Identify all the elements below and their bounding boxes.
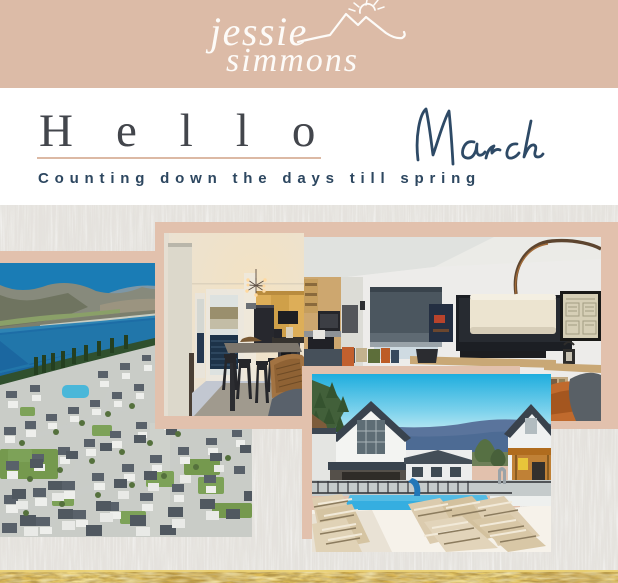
- svg-text:simmons: simmons: [226, 42, 359, 79]
